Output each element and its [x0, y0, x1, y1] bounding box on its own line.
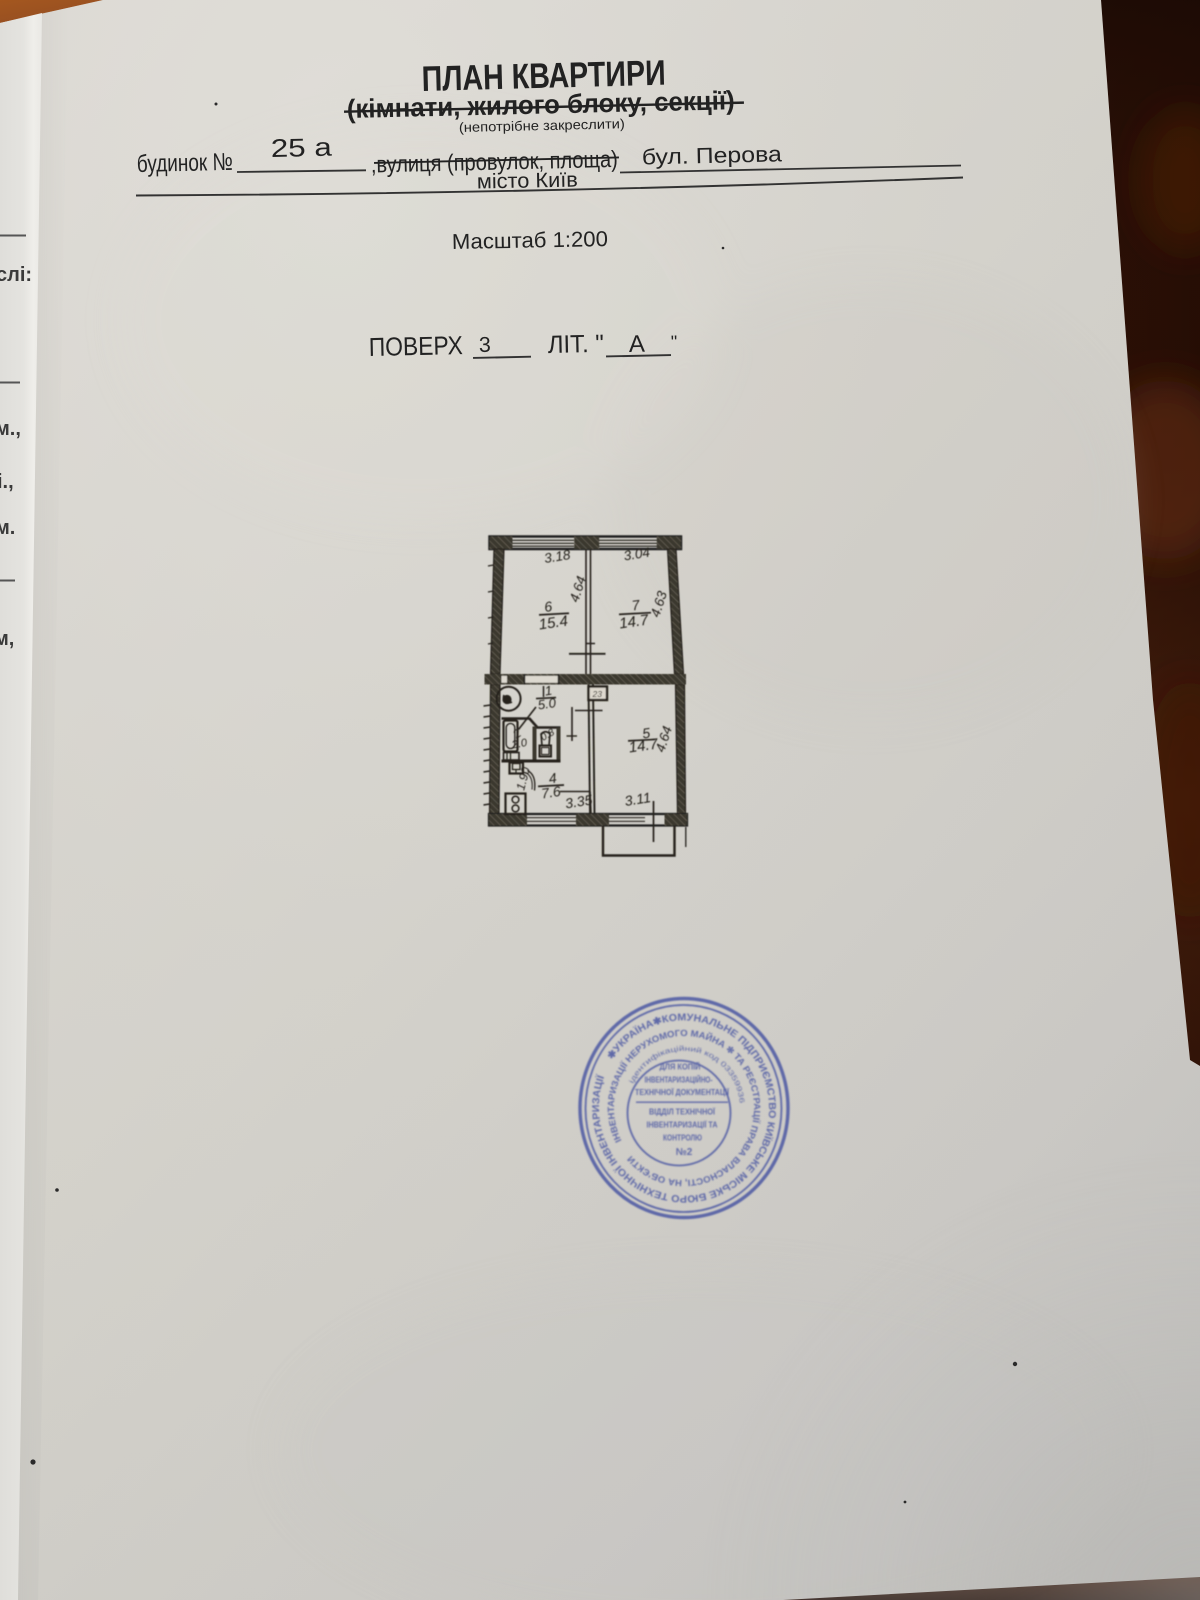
svg-text:№2: №2 — [676, 1147, 693, 1158]
svg-text:місто Київ: місто Київ — [477, 169, 578, 194]
svg-text:м.: м. — [0, 517, 15, 539]
svg-text:ДЛЯ КОПІЙ: ДЛЯ КОПІЙ — [660, 1061, 701, 1072]
svg-text:КОНТРОЛЮ: КОНТРОЛЮ — [663, 1133, 702, 1143]
svg-text:Масштаб 1:200: Масштаб 1:200 — [452, 227, 608, 254]
svg-text:ТЕХНІЧНОЇ ДОКУМЕНТАЦІЇ: ТЕХНІЧНОЇ ДОКУМЕНТАЦІЇ — [635, 1087, 730, 1097]
svg-text:ПОВЕРХ: ПОВЕРХ — [368, 330, 463, 362]
svg-text:будинок №: будинок № — [137, 149, 234, 178]
svg-text:23: 23 — [592, 689, 603, 699]
svg-text:м,: м, — [0, 628, 14, 650]
svg-text:5.0: 5.0 — [537, 695, 558, 712]
svg-text:25 а: 25 а — [271, 134, 334, 163]
svg-text:": " — [671, 332, 678, 352]
svg-text:А: А — [629, 331, 646, 358]
svg-text:м.,: м., — [0, 418, 21, 440]
svg-text:ЛІТ. ": ЛІТ. " — [548, 330, 605, 359]
svg-text:бул. Перова: бул. Перова — [642, 141, 783, 169]
svg-text:і.,: і., — [0, 471, 14, 493]
svg-text:ІНВЕНТАРИЗАЦІЙНО-: ІНВЕНТАРИЗАЦІЙНО- — [645, 1074, 713, 1085]
svg-text:7.6: 7.6 — [540, 783, 562, 802]
svg-text:ВІДДІЛ ТЕХНІЧНОЇ: ВІДДІЛ ТЕХНІЧНОЇ — [649, 1107, 716, 1117]
svg-text:3: 3 — [479, 333, 491, 357]
svg-text:ІНВЕНТАРИЗАЦІЇ ТА: ІНВЕНТАРИЗАЦІЇ ТА — [647, 1120, 718, 1130]
svg-text:слі:: слі: — [0, 264, 32, 286]
